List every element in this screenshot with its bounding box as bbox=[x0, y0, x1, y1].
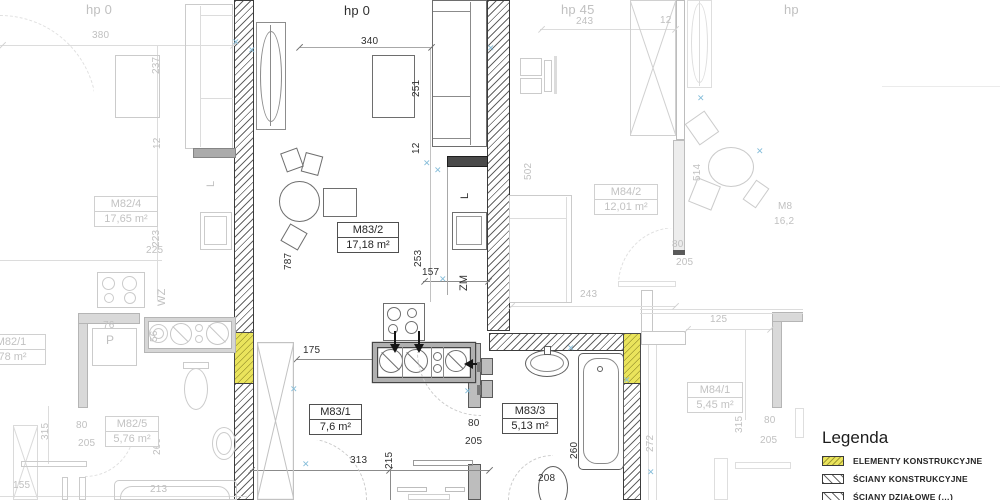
legend-swatch-yellow-hatch bbox=[822, 456, 844, 466]
room-name: M82/5 bbox=[106, 417, 158, 432]
room-area: 17,18 m² bbox=[338, 238, 398, 252]
room-label-0: M83/217,18 m² bbox=[337, 222, 399, 253]
room-name: M84/2 bbox=[595, 185, 657, 200]
room-name: M82/4 bbox=[95, 197, 157, 212]
legend-item-0: ELEMENTY KONSTRUKCYJNE bbox=[822, 456, 1000, 466]
room-area: 12,01 m² bbox=[595, 200, 657, 214]
room-label-7: M84/15,45 m² bbox=[687, 382, 743, 413]
room-label-1: M83/17,6 m² bbox=[309, 404, 362, 435]
room-area: 5,45 m² bbox=[688, 398, 742, 412]
room-label-5: M82/55,76 m² bbox=[105, 416, 159, 447]
room-area: 5,76 m² bbox=[106, 432, 158, 446]
legend-swatch-diag-hatch bbox=[822, 492, 844, 500]
room-label-2: M83/35,13 m² bbox=[502, 403, 558, 434]
room-area: 17,65 m² bbox=[95, 212, 157, 226]
room-label-4: M82/1,78 m² bbox=[0, 334, 46, 365]
legend-label: ŚCIANY DZIAŁOWE (…) bbox=[853, 492, 953, 500]
room-label-3: M82/417,65 m² bbox=[94, 196, 158, 227]
legend-label: ELEMENTY KONSTRUKCYJNE bbox=[853, 456, 982, 466]
room-name: M83/3 bbox=[503, 404, 557, 419]
floor-plan: hp 034025112787253157LZM1753132158020526… bbox=[0, 0, 1000, 500]
room-name: M84/1 bbox=[688, 383, 742, 398]
legend-label: ŚCIANY KONSTRUKCYJNE bbox=[853, 474, 968, 484]
room-label-6: M84/212,01 m² bbox=[594, 184, 658, 215]
legend-item-2: ŚCIANY DZIAŁOWE (…) bbox=[822, 492, 1000, 500]
room-name: M83/2 bbox=[338, 223, 398, 238]
room-name: M83/1 bbox=[310, 405, 361, 420]
rooms-layer: M83/217,18 m²M83/17,6 m²M83/35,13 m²M82/… bbox=[0, 0, 1000, 500]
legend: Legenda ELEMENTY KONSTRUKCYJNEŚCIANY KON… bbox=[822, 428, 1000, 500]
room-area: 5,13 m² bbox=[503, 419, 557, 433]
room-area: 7,6 m² bbox=[310, 420, 361, 434]
legend-item-1: ŚCIANY KONSTRUKCYJNE bbox=[822, 474, 1000, 484]
room-name: M82/1 bbox=[0, 335, 45, 350]
legend-title: Legenda bbox=[822, 428, 1000, 448]
room-area: ,78 m² bbox=[0, 350, 45, 364]
legend-swatch-diag-hatch bbox=[822, 474, 844, 484]
